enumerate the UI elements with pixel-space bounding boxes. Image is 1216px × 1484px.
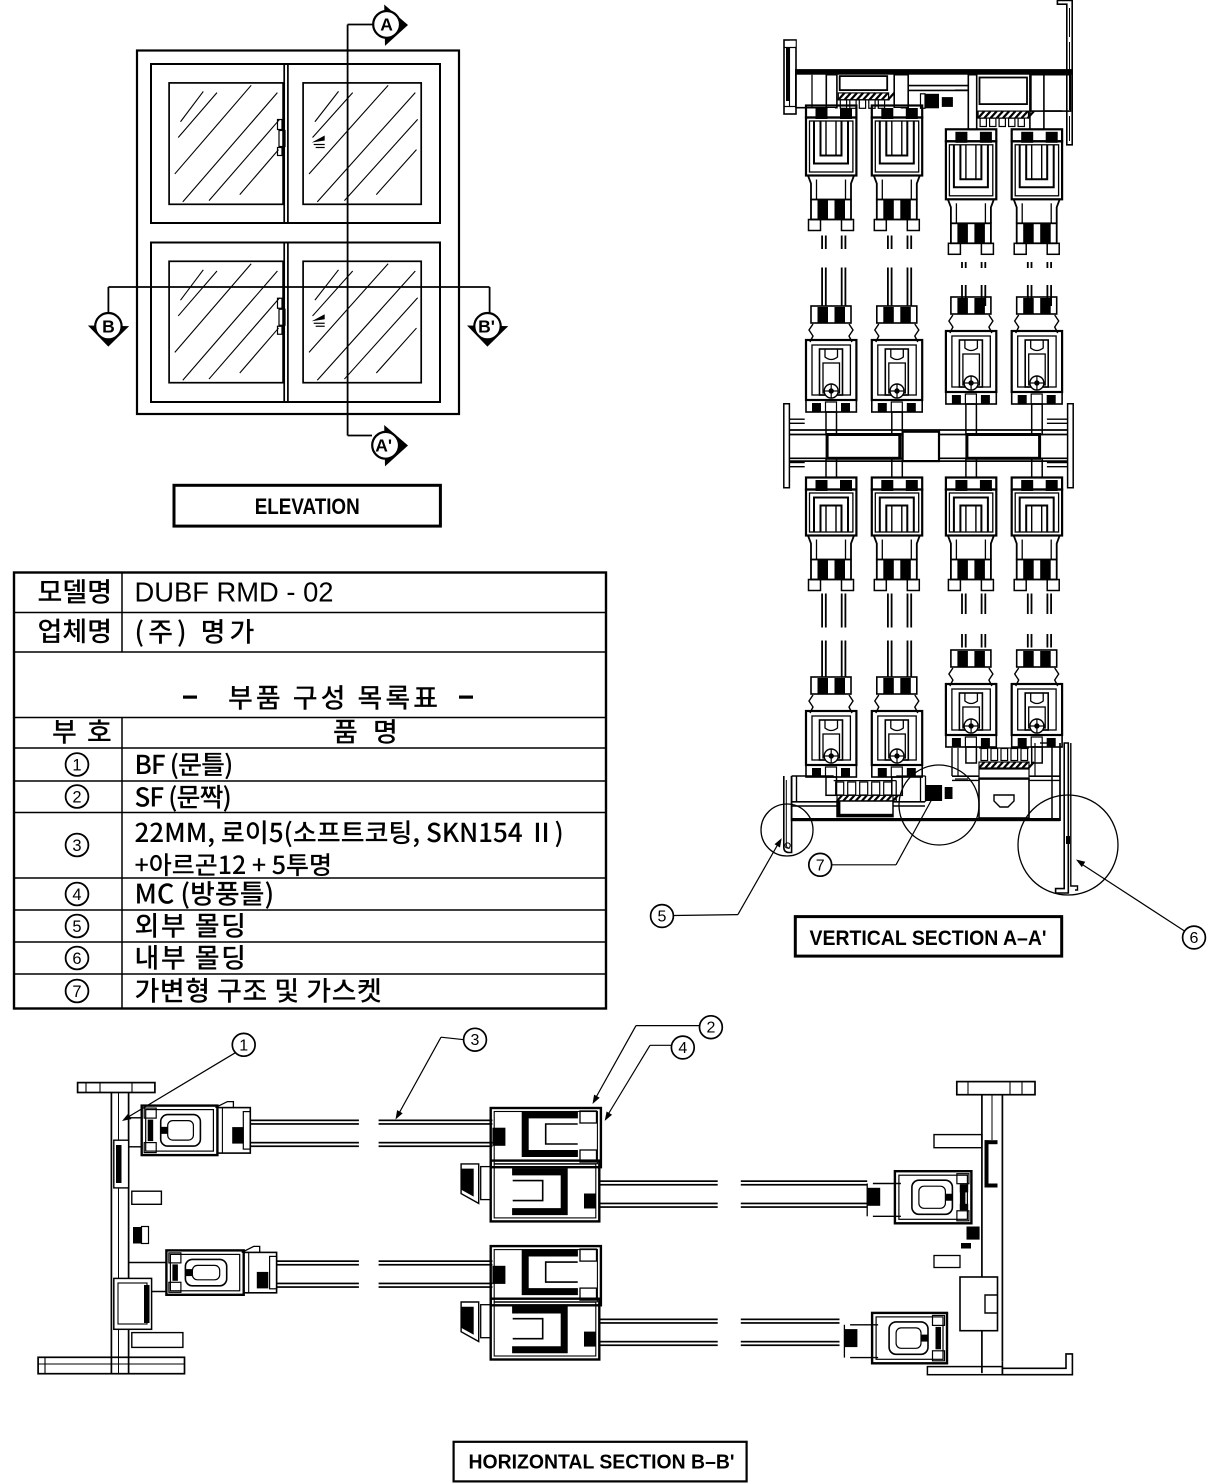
- svg-text:4: 4: [72, 886, 81, 904]
- svg-text:1: 1: [72, 756, 81, 774]
- svg-text:A': A': [375, 436, 392, 456]
- svg-text:A: A: [380, 15, 393, 35]
- svg-text:3: 3: [72, 837, 81, 855]
- svg-text:5: 5: [658, 909, 667, 926]
- svg-text:ELEVATION: ELEVATION: [255, 494, 360, 519]
- svg-text:6: 6: [1190, 930, 1199, 947]
- svg-text:6: 6: [72, 950, 81, 968]
- svg-text:2: 2: [706, 1020, 715, 1037]
- svg-text:HORIZONTAL SECTION B–B': HORIZONTAL SECTION B–B': [469, 1450, 735, 1473]
- svg-text:B: B: [102, 317, 115, 337]
- svg-text:7: 7: [72, 983, 81, 1001]
- svg-text:VERTICAL SECTION A–A': VERTICAL SECTION A–A': [810, 927, 1047, 950]
- svg-text:DUBF RMD - 02: DUBF RMD - 02: [135, 577, 334, 608]
- svg-text:1: 1: [239, 1037, 248, 1054]
- svg-text:7: 7: [816, 857, 825, 874]
- svg-text:5: 5: [72, 918, 81, 936]
- svg-text:4: 4: [678, 1040, 687, 1057]
- svg-text:3: 3: [471, 1032, 480, 1049]
- svg-text:2: 2: [72, 788, 81, 806]
- svg-text:B': B': [478, 317, 495, 337]
